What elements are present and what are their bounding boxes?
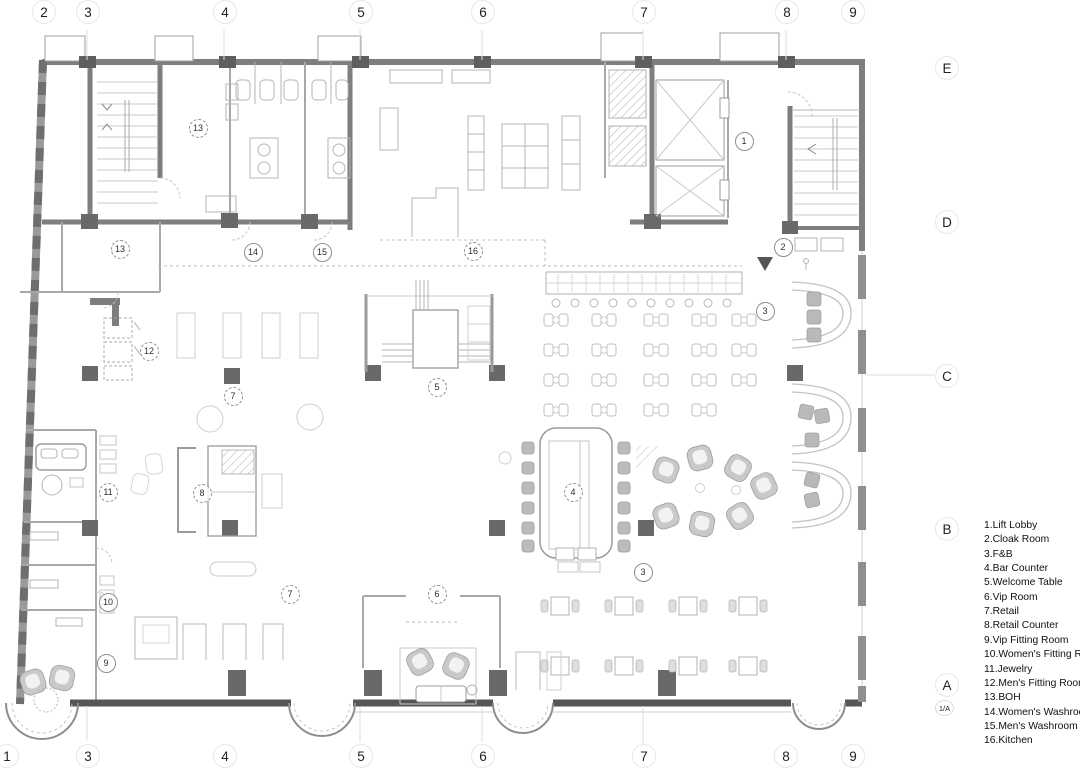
vip-fitting-chairs bbox=[18, 664, 76, 712]
legend-item: 13.BOH bbox=[984, 692, 1021, 703]
mens-fitting bbox=[104, 318, 132, 380]
room-number-balloon: 14 bbox=[244, 243, 263, 262]
grid-column-label: 7 bbox=[632, 744, 656, 768]
floor-plan-canvas: 2345678913456789EDCBA1/A 123345677891011… bbox=[0, 0, 1080, 770]
grid-row-label: C bbox=[935, 364, 959, 388]
grid-column-label: 7 bbox=[632, 0, 656, 24]
grid-column-label: 5 bbox=[349, 0, 373, 24]
grid-column-label: 9 bbox=[841, 0, 865, 24]
room-number-balloon: 4 bbox=[564, 483, 583, 502]
wall-displays bbox=[100, 436, 116, 613]
room-number-balloon: 3 bbox=[634, 563, 653, 582]
washrooms bbox=[236, 62, 350, 178]
grid-column-label: 9 bbox=[841, 744, 865, 768]
vip-room bbox=[400, 646, 477, 704]
grid-column-label: 2 bbox=[32, 0, 56, 24]
room-number-balloon: 7 bbox=[281, 585, 300, 604]
walls bbox=[42, 59, 862, 251]
boh-fixtures bbox=[206, 84, 238, 212]
dining-sets bbox=[541, 597, 767, 675]
storage-racks bbox=[609, 70, 646, 166]
room-number-balloon: 16 bbox=[464, 242, 483, 261]
grid-row-label: E bbox=[935, 56, 959, 80]
welcome-table bbox=[366, 280, 492, 372]
grid-leaders bbox=[87, 30, 934, 745]
legend-item: 8.Retail Counter bbox=[984, 620, 1058, 631]
grid-column-label: 3 bbox=[76, 0, 100, 24]
legend-item: 11.Jewelry bbox=[984, 664, 1032, 675]
room-number-balloon: 9 bbox=[97, 654, 116, 673]
stair-right bbox=[792, 110, 860, 215]
grid-column-label: 8 bbox=[774, 744, 798, 768]
grid-column-label: 3 bbox=[76, 744, 100, 768]
grid-column-label: 4 bbox=[213, 0, 237, 24]
grid-column-label: 4 bbox=[213, 744, 237, 768]
grid-column-label: 6 bbox=[471, 744, 495, 768]
room-number-balloon: 2 bbox=[774, 238, 793, 257]
fnb-seating bbox=[544, 314, 756, 416]
legend-item: 10.Women's Fitting Room bbox=[984, 649, 1080, 660]
grid-row-label: A bbox=[935, 673, 959, 697]
room-number-balloon: 7 bbox=[224, 387, 243, 406]
room-number-balloon: 5 bbox=[428, 378, 447, 397]
grid-column-label: 6 bbox=[471, 0, 495, 24]
room-number-balloon: 12 bbox=[140, 342, 159, 361]
legend-item: 3.F&B bbox=[984, 549, 1013, 560]
room-number-balloon: 1 bbox=[735, 132, 754, 151]
grid-row-label: B bbox=[935, 517, 959, 541]
lounge-armchairs bbox=[651, 443, 780, 538]
room-number-balloon: 8 bbox=[193, 484, 212, 503]
room-number-balloon: 15 bbox=[313, 243, 332, 262]
room-number-balloon: 10 bbox=[99, 593, 118, 612]
cloak-room-fixtures bbox=[795, 238, 843, 270]
fnb-counter bbox=[546, 272, 742, 294]
legend-item: 7.Retail bbox=[984, 606, 1019, 617]
bay-windows bbox=[6, 703, 845, 739]
fitting-rooms bbox=[30, 532, 82, 626]
room-number-balloon: 13 bbox=[111, 240, 130, 259]
jewelry-room bbox=[36, 444, 86, 495]
room-number-balloon: 11 bbox=[99, 483, 118, 502]
entrance-arrow bbox=[757, 257, 773, 271]
room-number-balloon: 3 bbox=[756, 302, 775, 321]
legend-item: 9.Vip Fitting Room bbox=[984, 635, 1069, 646]
legend-item: 15.Men's Washroom bbox=[984, 721, 1078, 732]
grid-row-label: 1/A bbox=[935, 700, 954, 716]
legend-item: 4.Bar Counter bbox=[984, 563, 1048, 574]
room-number-balloon: 6 bbox=[428, 585, 447, 604]
stair-left bbox=[97, 82, 158, 203]
banquette-seats bbox=[798, 292, 830, 508]
floor-plan-drawing bbox=[0, 0, 1080, 770]
top-pilasters bbox=[45, 33, 779, 61]
legend-item: 12.Men's Fitting Room bbox=[984, 678, 1080, 689]
grid-column-label: 5 bbox=[349, 744, 373, 768]
legend-item: 2.Cloak Room bbox=[984, 534, 1049, 545]
lift-shafts bbox=[656, 80, 729, 216]
kitchen-fixtures bbox=[380, 70, 580, 237]
legend-item: 6.Vip Room bbox=[984, 592, 1038, 603]
legend-item: 1.Lift Lobby bbox=[984, 520, 1037, 531]
legend-item: 5.Welcome Table bbox=[984, 577, 1063, 588]
legend-item: 16.Kitchen bbox=[984, 735, 1033, 746]
fnb-counter-stools bbox=[552, 299, 731, 307]
room-number-balloon: 13 bbox=[189, 119, 208, 138]
legend-item: 14.Women's Washroom bbox=[984, 707, 1080, 718]
grid-column-label: 8 bbox=[775, 0, 799, 24]
grid-row-label: D bbox=[935, 210, 959, 234]
